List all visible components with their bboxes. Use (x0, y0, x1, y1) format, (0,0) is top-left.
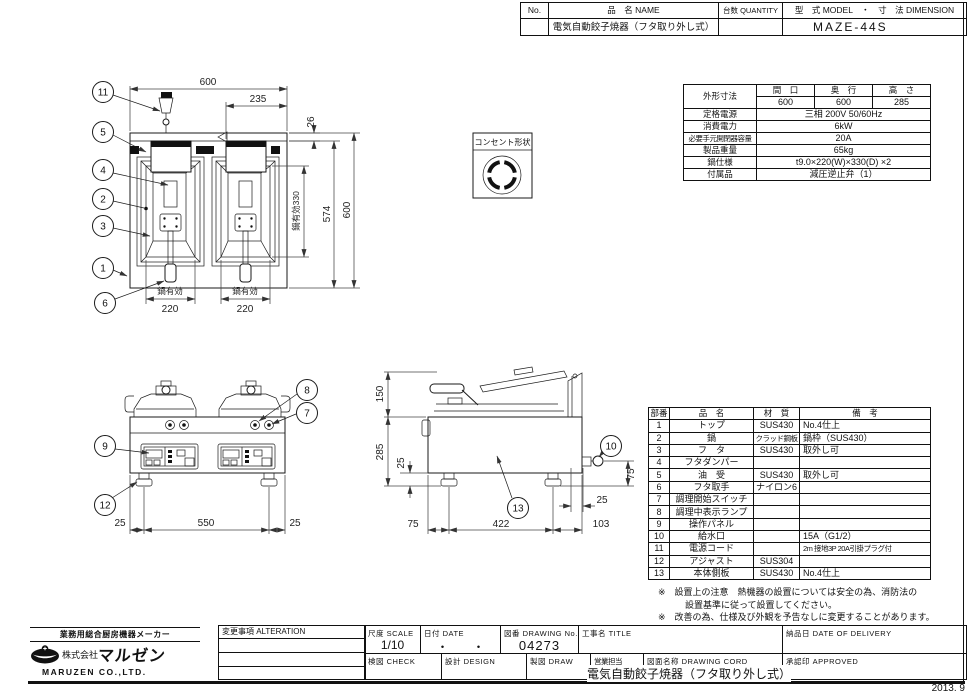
dim-side-htop: 150 (375, 385, 386, 402)
power-plug-symbol (159, 92, 173, 133)
balloon-7: 7 (304, 409, 310, 420)
drawing-no-value: 04273 (501, 638, 578, 653)
dim-front-m2: 25 (289, 518, 301, 529)
dim-side-mrear: 103 (593, 519, 610, 530)
spec-val-width: 600 (757, 97, 815, 109)
dim-plan-band: 26 (306, 116, 317, 128)
balloon-6: 6 (102, 299, 108, 310)
front-balloons: 9 12 8 7 (95, 380, 318, 516)
parts-row: 3フ タSUS430取外し可 (649, 444, 931, 456)
parts-row: 1トップSUS430No.4仕上 (649, 420, 931, 432)
note-line: ※ 設置上の注意 熱機器の設置については安全の為、消防法の (658, 586, 948, 599)
dim-side-hinlet: 75 (626, 468, 637, 480)
parts-row: 5油 受SUS430取外し可 (649, 469, 931, 481)
side-dimensions: 150 285 25 75 25 (375, 372, 637, 534)
spec-row-value: 6kW (757, 121, 931, 133)
spec-row-value: 減圧逆止弁（1） (757, 169, 931, 181)
lid-damper (151, 141, 191, 147)
maruzen-logo-icon (30, 644, 60, 664)
design-label: 設計 DESIGN (445, 656, 495, 667)
plan-right-unit (205, 141, 280, 282)
spec-row-label: 必要手元開閉器容量 (684, 133, 757, 145)
dim-side-hbody: 285 (375, 443, 386, 460)
outlet-shape-box: コンセント形状 (473, 133, 532, 198)
dim-plan-depth: 600 (342, 201, 353, 218)
alteration-row (219, 639, 365, 653)
design-cell: 設計 DESIGN (441, 653, 526, 680)
dim-side-span: 422 (493, 519, 510, 530)
company-english: MARUZEN CO.,LTD. (42, 667, 147, 677)
header-no-value (521, 19, 549, 36)
date-cell: 日付 DATE ・ ・ (420, 626, 500, 653)
check-label: 検図 CHECK (368, 656, 415, 667)
balloon-4: 4 (100, 166, 106, 177)
balloon-5: 5 (100, 128, 106, 139)
parts-table: 部番 品 名 材 質 備 考 1トップSUS430No.4仕上 2鍋クラッド鋼板… (648, 407, 931, 580)
sheet-right-border (963, 2, 964, 681)
spec-dim-label: 外形寸法 (684, 85, 757, 109)
balloon-9: 9 (102, 442, 108, 453)
lid-front-right (219, 381, 290, 417)
draw-label: 製図 DRAW (530, 656, 573, 667)
draw-cell: 製図 DRAW (526, 653, 590, 680)
balloon-12: 12 (99, 501, 111, 512)
parts-header-note: 備 考 (800, 408, 931, 420)
spec-table: 外形寸法 間 口 奥 行 高 さ 600 600 285 定格電源 三相 200… (683, 84, 931, 181)
check-cell: 検図 CHECK (365, 653, 441, 680)
spec-row-label: 鍋仕様 (684, 157, 757, 169)
balloon-10: 10 (605, 442, 617, 453)
dim-side-inletoff: 25 (596, 495, 608, 506)
spec-col-width: 間 口 (757, 85, 815, 97)
dim-side-hfoot: 25 (396, 457, 407, 469)
spec-row-label: 定格電源 (684, 109, 757, 121)
header-name-label: 品 名 NAME (549, 3, 719, 19)
delivery-label: 納品日 DATE OF DELIVERY (786, 628, 892, 639)
balloon-8: 8 (304, 386, 310, 397)
parts-row: 8調理中表示ランプ (649, 506, 931, 518)
scale-value: 1/10 (365, 638, 420, 652)
spec-col-height: 高 さ (873, 85, 931, 97)
outlet-label: コンセント形状 (475, 137, 531, 147)
company-prefix: 株式会社 (62, 648, 98, 661)
dim-plan-inner: 574 (322, 205, 333, 222)
parts-row: 6フタ取手ナイロン6 (649, 481, 931, 493)
parts-row: 9操作パネル (649, 518, 931, 530)
spec-col-depth: 奥 行 (815, 85, 873, 97)
open-lid (480, 371, 567, 392)
lid-handle-plan (165, 264, 176, 282)
dim-pan-width-left: 220 (162, 304, 179, 315)
parts-header-name: 品 名 (670, 408, 754, 420)
approved-cell: 承認印 APPROVED (782, 653, 966, 680)
header-product-name: 電気自動餃子焼器（フタ取り外し式） (549, 19, 719, 36)
header-qty-value (719, 19, 783, 36)
alteration-label: 変更事項 ALTERATION (219, 626, 365, 639)
parts-row: 12アジャストSUS304 (649, 555, 931, 567)
alteration-table: 変更事項 ALTERATION (218, 625, 366, 680)
header-model-value: MAZE-44S (783, 19, 967, 36)
side-view: 150 285 25 75 25 (375, 367, 637, 534)
plan-view: 600 235 26 574 600 鍋有効330 (93, 77, 361, 315)
note-line: ※ 改善の為、仕様及び外観を予告なしに変更することがあります。 (658, 611, 948, 624)
approved-label: 承認印 APPROVED (786, 656, 858, 667)
side-feet (441, 473, 561, 486)
parts-row: 13本体側板SUS430No.4仕上 (649, 567, 931, 579)
drawing-sheet: 600 235 26 574 600 鍋有効330 (0, 0, 976, 692)
header-no-label: No. (521, 3, 549, 19)
dim-pan-label-left: 鍋有効 (157, 286, 183, 296)
parts-header-material: 材 質 (754, 408, 800, 420)
spec-row-label: 消費電力 (684, 121, 757, 133)
lid-handle-side (430, 384, 464, 393)
front-dimensions: 25 550 25 (114, 475, 301, 534)
titleblock-main: 尺度 SCALE 1/10 日付 DATE ・ ・ 図番 DRAWING No.… (364, 625, 967, 680)
project-title-cell: 工事名 TITLE (578, 626, 782, 653)
start-switch-knobs (166, 421, 274, 430)
balloon-11: 11 (98, 88, 109, 99)
spec-val-height: 285 (873, 97, 931, 109)
lid-front-left (125, 381, 196, 417)
balloon-1: 1 (100, 264, 106, 275)
drawing-no-cell: 図番 DRAWING No. 04273 (500, 626, 578, 653)
note-line: 設置基準に従って設置してください。 (658, 599, 948, 612)
balloon-2: 2 (100, 195, 106, 206)
scale-cell: 尺度 SCALE 1/10 (365, 626, 420, 653)
spec-row-value: 65kg (757, 145, 931, 157)
dim-pan-width-right: 220 (237, 304, 254, 315)
water-inlet (582, 456, 603, 466)
header-table: No. 品 名 NAME 台数 QUANTITY 型 式 MODEL ・ 寸 法… (520, 2, 967, 36)
spec-row-value: 三相 200V 50/60Hz (757, 109, 931, 121)
installation-notes: ※ 設置上の注意 熱機器の設置については安全の為、消防法の 設置基準に従って設置… (658, 586, 948, 624)
header-model-label: 型 式 MODEL ・ 寸 法 DIMENSION (783, 3, 967, 19)
front-feet (136, 473, 277, 486)
dim-plan-width: 600 (200, 77, 217, 88)
dim-front-span: 550 (198, 518, 215, 529)
project-title-label: 工事名 TITLE (582, 628, 632, 639)
spec-row-label: 製品重量 (684, 145, 757, 157)
dim-side-mfront: 75 (407, 519, 419, 530)
spec-row-value: t9.0×220(W)×330(D) ×2 (757, 157, 931, 169)
spec-val-depth: 600 (815, 97, 873, 109)
delivery-cell: 納品日 DATE OF DELIVERY (782, 626, 966, 653)
company-block: 業務用総合厨房機器メーカー 株式会社 マルゼン MARUZEN CO.,LTD. (28, 625, 216, 678)
front-view: 25 550 25 9 12 8 7 (95, 380, 318, 535)
date-stamp: 2013. 9 (895, 683, 965, 692)
parts-row: 2鍋クラッド鋼板鍋枠（SUS430） (649, 432, 931, 444)
parts-header-no: 部番 (649, 408, 670, 420)
company-brand: マルゼン (97, 642, 168, 666)
spec-row-label: 付属品 (684, 169, 757, 181)
dim-plan-lid: 235 (250, 94, 267, 105)
drawing-name-value: 電気自動餃子焼器（フタ取り外し式） (587, 665, 791, 682)
control-panel-left (141, 444, 198, 469)
control-panel-right (218, 444, 275, 469)
company-tagline: 業務用総合厨房機器メーカー (30, 627, 200, 642)
dim-pan-depth: 鍋有効330 (291, 191, 301, 231)
alteration-row (219, 653, 365, 667)
plan-left-unit (130, 141, 205, 282)
parts-row: 11電源コード2m 接地3P 20A引掛プラグ付 (649, 543, 931, 555)
dim-pan-label-right: 鍋有効 (232, 286, 258, 296)
alteration-row (219, 667, 365, 679)
spec-row-value: 20A (757, 133, 931, 145)
parts-row: 10給水口15A（G1/2） (649, 530, 931, 542)
balloon-3: 3 (100, 222, 106, 233)
header-qty-label: 台数 QUANTITY (719, 3, 783, 19)
parts-row: 7調理開始スイッチ (649, 494, 931, 506)
title-block: 業務用総合厨房機器メーカー 株式会社 マルゼン MARUZEN CO.,LTD.… (28, 625, 965, 684)
parts-row: 4フタダンパー (649, 457, 931, 469)
dim-front-m1: 25 (114, 518, 126, 529)
balloon-13: 13 (512, 504, 524, 515)
